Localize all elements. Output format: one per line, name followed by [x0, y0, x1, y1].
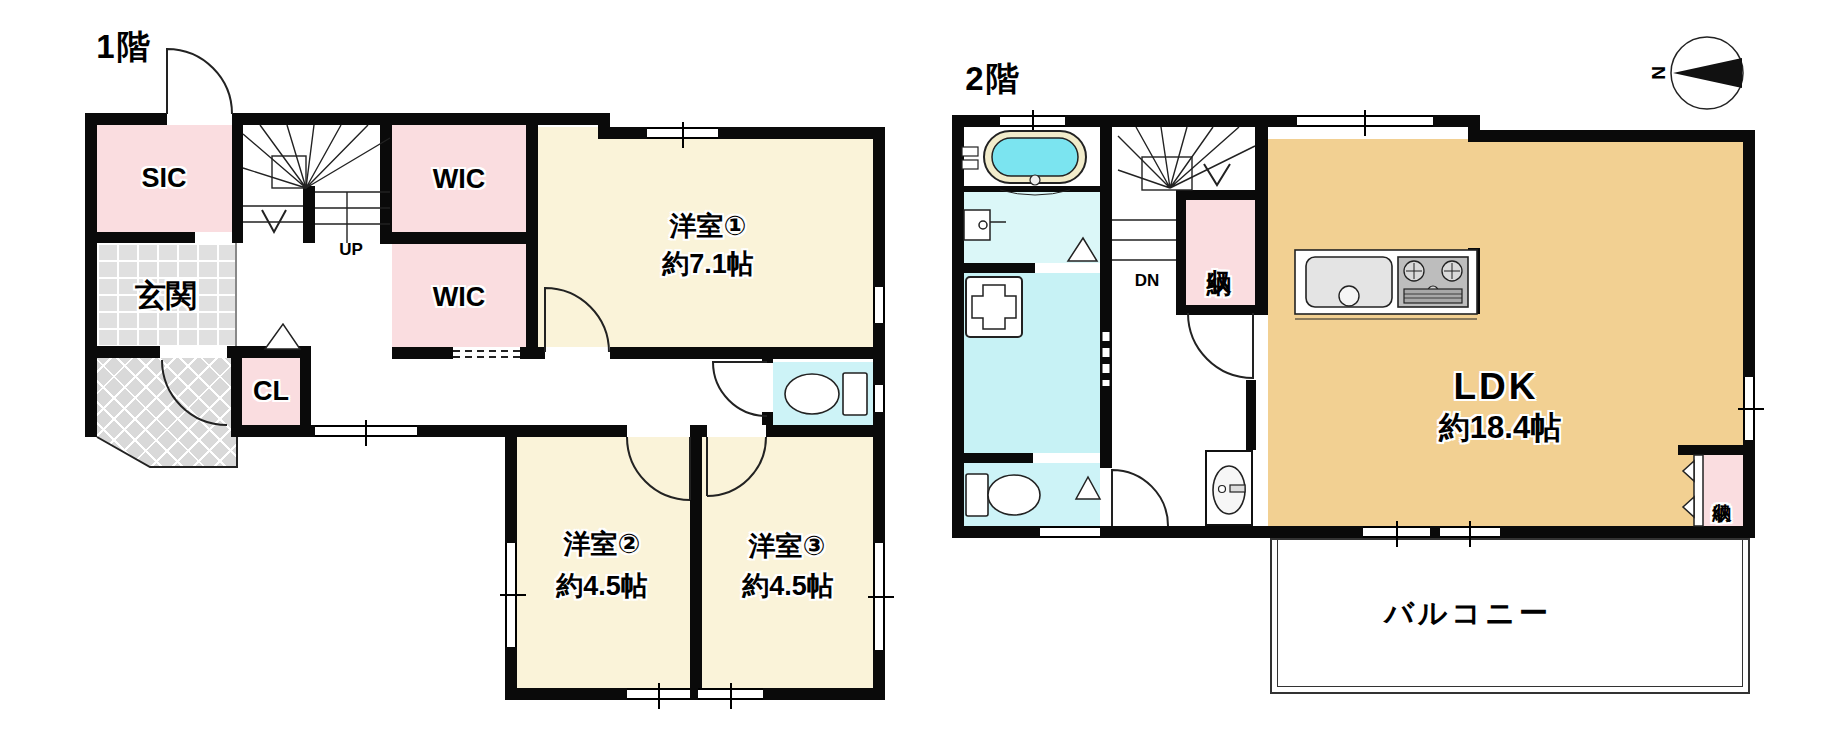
label-up: UP	[339, 240, 363, 260]
floor2-title: 2階	[965, 57, 1020, 102]
room-washroom	[964, 192, 1100, 263]
label-bedroom1-name: 洋室①	[670, 208, 747, 244]
room-laundry	[964, 273, 1100, 453]
window	[1743, 377, 1755, 440]
floor-plan: 1階 SIC WIC WIC 玄関 CL UP 洋室① 約7.1帖 洋室② 約4…	[0, 0, 1840, 734]
entrance-porch	[97, 358, 237, 467]
window	[647, 127, 718, 139]
label-bedroom2-size: 約4.5帖	[556, 568, 648, 604]
label-ldk: LDK	[1453, 366, 1538, 408]
label-wic-lower: WIC	[433, 282, 485, 313]
compass-icon	[1671, 37, 1743, 109]
label-ldk-size: 約18.4帖	[1439, 407, 1561, 449]
label-bedroom3-size: 約4.5帖	[742, 568, 834, 604]
label-bedroom2-name: 洋室②	[564, 526, 641, 562]
room-ldk	[1268, 139, 1743, 526]
label-storage-center: 収納	[1204, 248, 1237, 256]
window	[1363, 526, 1430, 538]
label-genkan: 玄関	[135, 275, 197, 317]
room-toilet-2f	[964, 463, 1100, 526]
floor1-title: 1階	[96, 25, 151, 70]
window	[1000, 115, 1065, 127]
label-bedroom3-name: 洋室③	[749, 528, 826, 564]
label-wic-upper: WIC	[433, 164, 485, 195]
room-storage-right	[1702, 455, 1743, 526]
washbasin-alcove	[1205, 450, 1253, 526]
window	[315, 425, 417, 437]
window	[873, 385, 885, 412]
window	[698, 688, 763, 700]
window	[873, 287, 885, 323]
room-bathroom	[964, 127, 1100, 188]
window	[873, 543, 885, 650]
label-cl: CL	[253, 376, 289, 407]
window	[627, 688, 690, 700]
room-bedroom2	[517, 437, 690, 688]
label-balcony: バルコニー	[1384, 594, 1552, 634]
label-dn: DN	[1135, 271, 1160, 291]
window	[1040, 526, 1100, 538]
window	[1440, 526, 1500, 538]
window	[1297, 115, 1433, 127]
window	[505, 543, 517, 647]
stairs-1f	[243, 125, 390, 243]
label-storage-right: 収納	[1709, 488, 1735, 490]
label-bedroom1-size: 約7.1帖	[662, 246, 754, 282]
label-sic: SIC	[141, 163, 186, 194]
compass-north-label: N	[1648, 66, 1670, 80]
closet-opening-dashes	[453, 351, 520, 357]
room-toilet-1f	[773, 362, 873, 425]
